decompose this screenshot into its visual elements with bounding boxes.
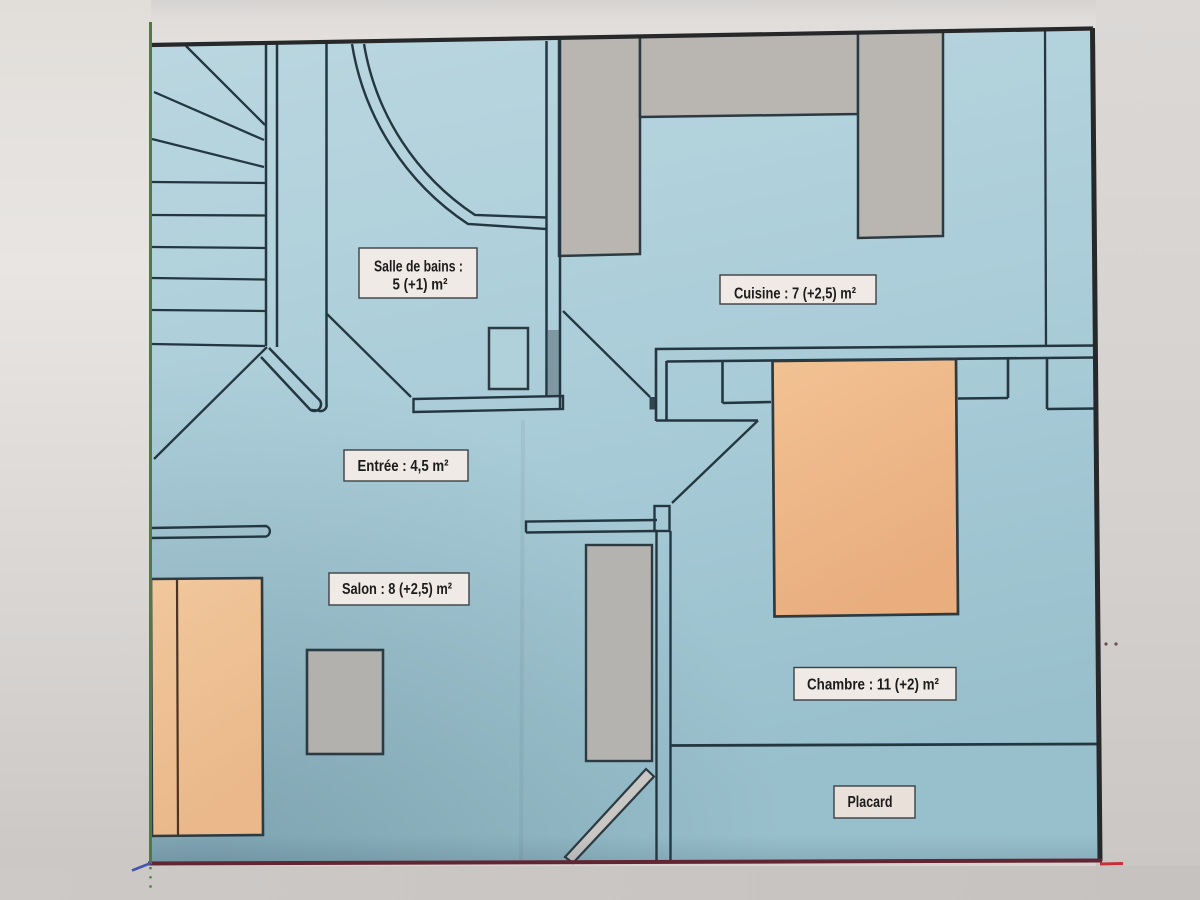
svg-text:Cuisine : 7 (+2,5) m²: Cuisine : 7 (+2,5) m² xyxy=(734,286,856,303)
svg-text:Salon : 8 (+2,5) m²: Salon : 8 (+2,5) m² xyxy=(342,581,452,598)
svg-text:5 (+1) m²: 5 (+1) m² xyxy=(393,277,448,294)
svg-text:Placard: Placard xyxy=(848,794,893,811)
svg-text:Chambre : 11 (+2) m²: Chambre : 11 (+2) m² xyxy=(807,677,939,694)
svg-text:Salle de bains :: Salle de bains : xyxy=(374,259,463,276)
svg-text:Entrée : 4,5 m²: Entrée : 4,5 m² xyxy=(358,458,449,475)
